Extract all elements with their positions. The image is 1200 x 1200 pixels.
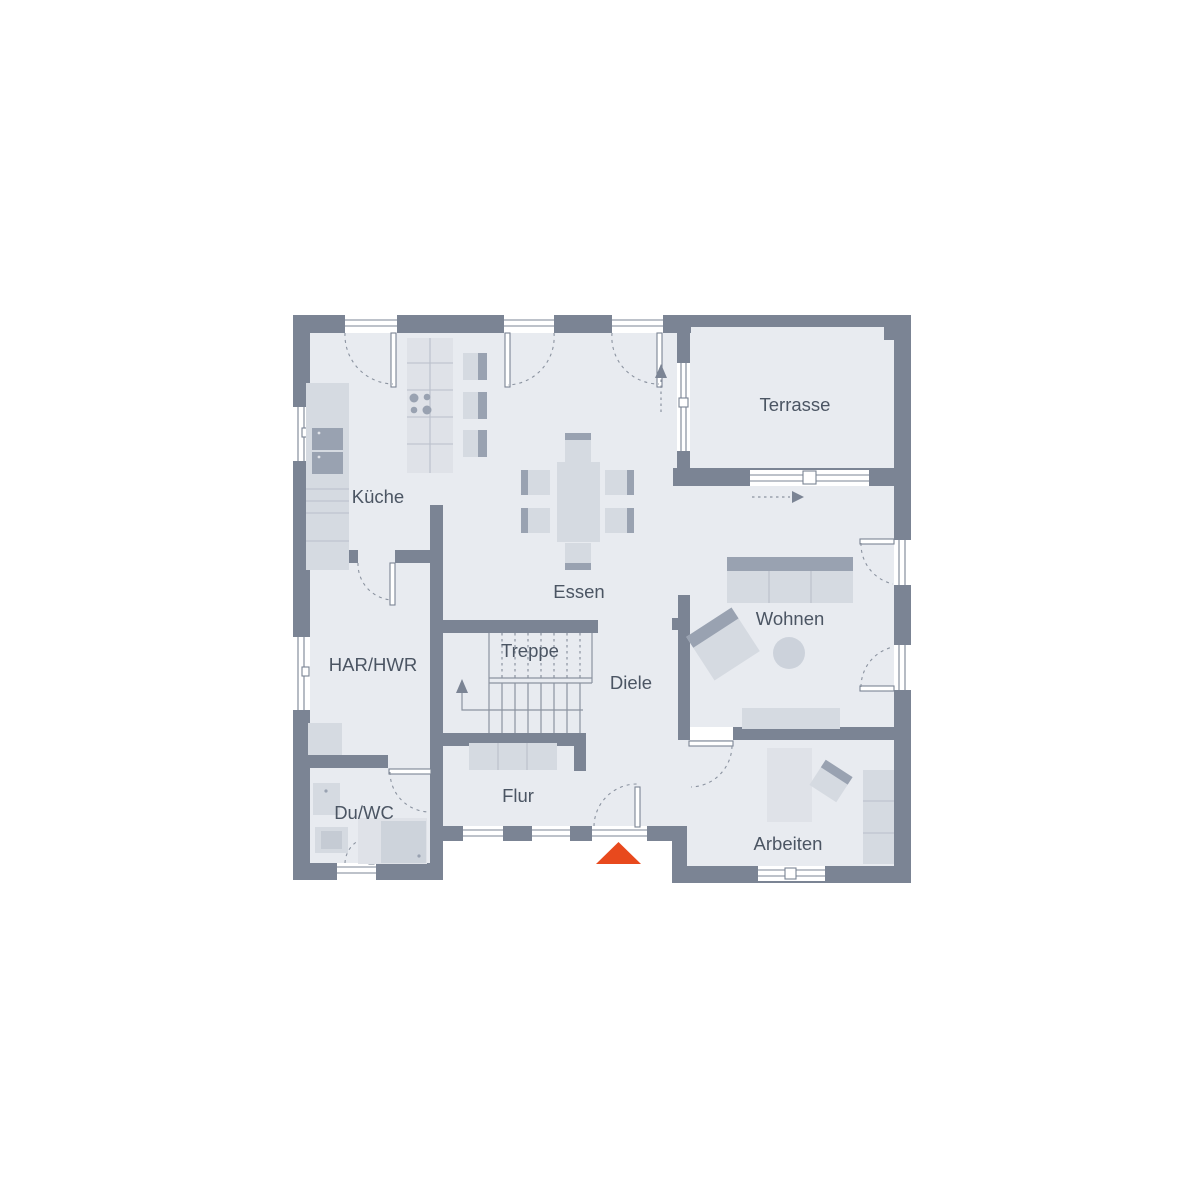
coffee-table [773, 637, 805, 669]
wall-terrace-pillar [884, 326, 897, 340]
floor-plan-canvas: Küche Essen Terrasse HAR/HWR Treppe Diel… [0, 0, 1200, 1200]
wall-right [894, 315, 911, 883]
oven-upper [312, 428, 343, 450]
sliding-door-wohnen-terrasse [750, 470, 869, 486]
door-essen-terrasse [677, 363, 690, 451]
window-har-left [293, 637, 310, 710]
room-label-wohnen: Wohnen [756, 608, 825, 629]
wall-top-terrace [691, 315, 911, 327]
sideboard [742, 708, 840, 729]
washing-machine [308, 723, 342, 755]
oven-lower [312, 452, 343, 474]
room-label-essen: Essen [553, 581, 604, 602]
wall-stair-stub [574, 733, 586, 771]
desk [767, 748, 812, 822]
wall-kueche-har-right [395, 550, 443, 563]
wall-har-duwc [293, 755, 388, 768]
floor-plan-drawing: Küche Essen Terrasse HAR/HWR Treppe Diel… [0, 0, 1200, 1200]
room-label-diele: Diele [610, 672, 652, 693]
room-label-du-wc: Du/WC [334, 802, 394, 823]
kitchen-island [407, 338, 453, 473]
bar-stools [463, 353, 487, 457]
window-arbeiten-bottom [758, 866, 825, 881]
shower [358, 818, 427, 864]
room-label-treppe: Treppe [501, 640, 559, 661]
room-label-arbeiten: Arbeiten [754, 833, 823, 854]
wall-porch-right [672, 826, 687, 883]
office-shelf [863, 770, 894, 864]
toilet [315, 827, 348, 853]
wall-stair-top [443, 620, 598, 633]
room-label-har-hwr: HAR/HWR [329, 654, 417, 675]
kitchen-tall-unit [306, 383, 349, 570]
room-label-terrasse: Terrasse [760, 394, 831, 415]
entrance-porch-outside [443, 841, 672, 903]
wall-nub [672, 618, 678, 630]
wall-diele-wohnen [678, 595, 690, 740]
window-flur-bottom-left [463, 826, 503, 841]
room-label-flur: Flur [502, 785, 534, 806]
dining-table [557, 462, 600, 542]
outside-lower-left [285, 880, 445, 905]
window-flur-bottom-right [532, 826, 570, 841]
flur-wardrobe [469, 743, 557, 770]
room-label-kueche: Küche [352, 486, 404, 507]
sofa [727, 557, 853, 603]
